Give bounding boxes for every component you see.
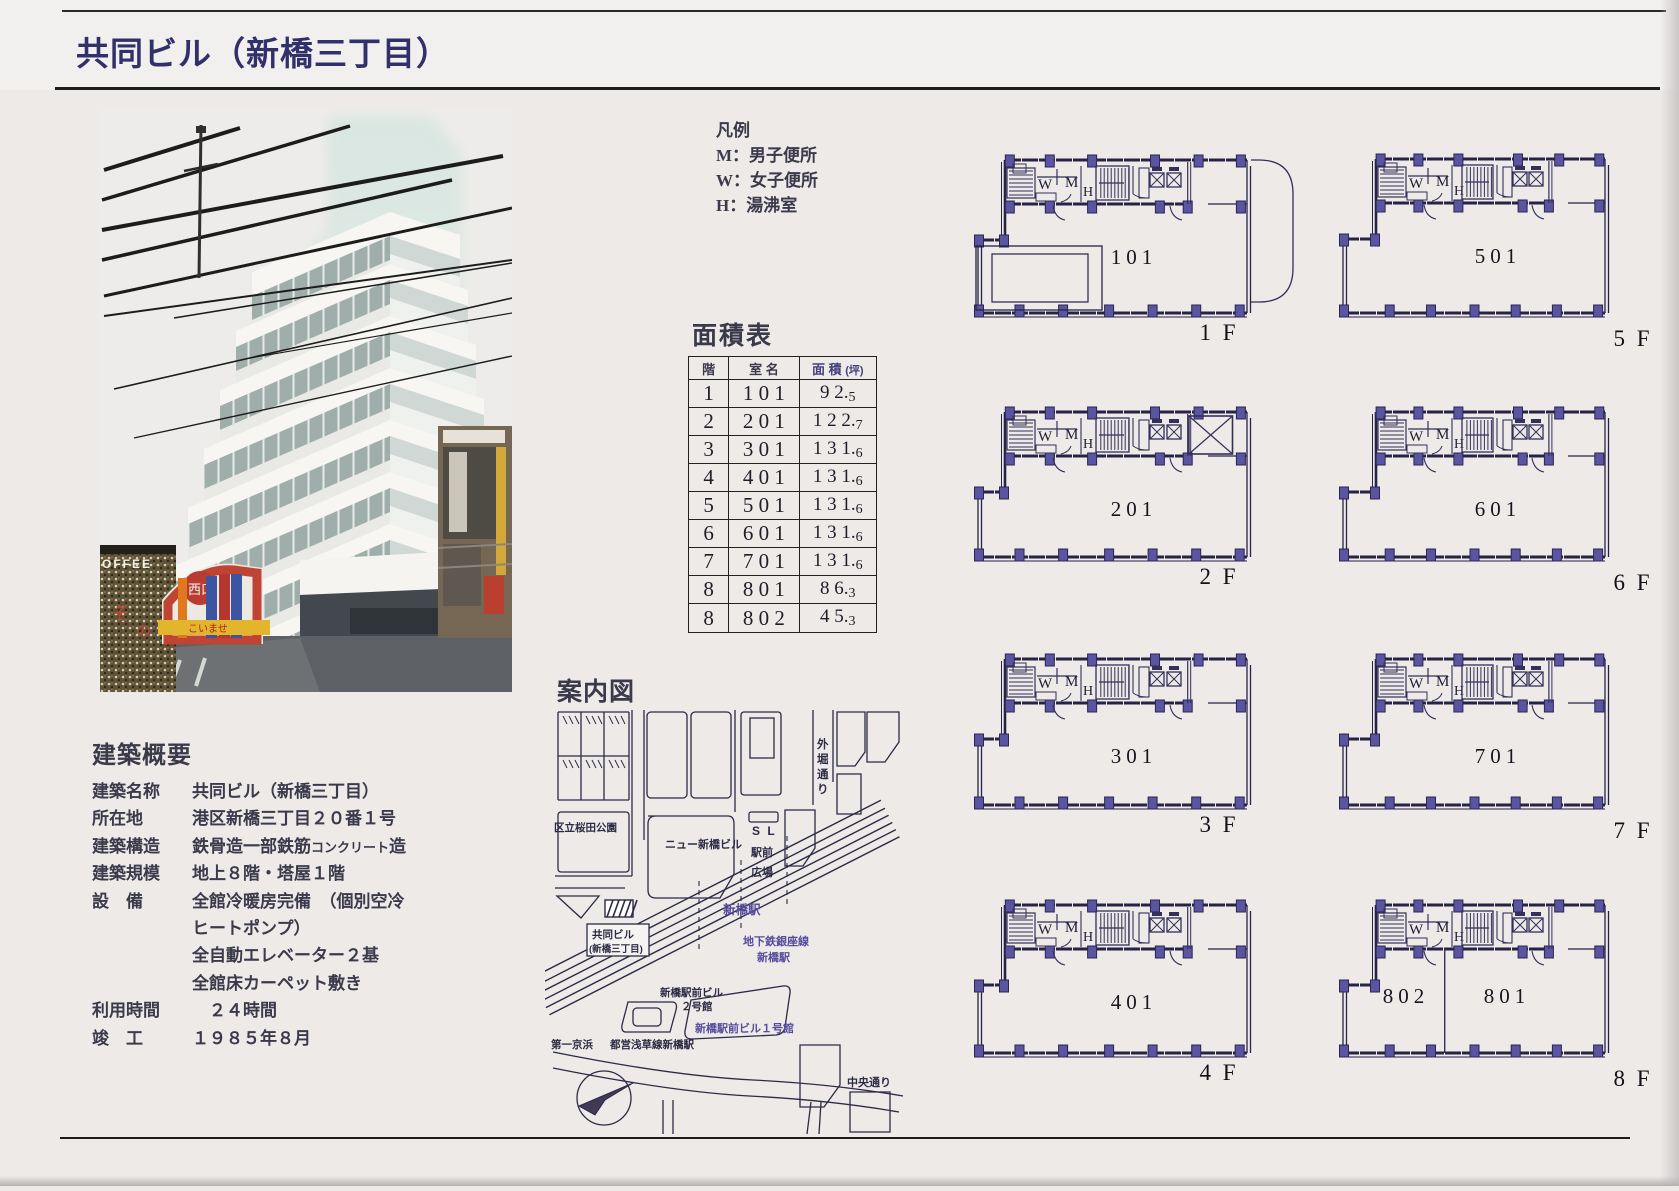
svg-text:W: W xyxy=(1409,429,1424,445)
svg-text:H: H xyxy=(1083,930,1093,945)
svg-text:401: 401 xyxy=(1111,990,1158,1014)
svg-text:3 F: 3 F xyxy=(1199,812,1238,837)
svg-text:101: 101 xyxy=(1111,245,1158,269)
svg-text:5 F: 5 F xyxy=(1613,326,1652,351)
svg-text:802: 802 xyxy=(1383,984,1430,1008)
svg-text:201: 201 xyxy=(1111,497,1158,521)
svg-text:W: W xyxy=(1409,922,1424,938)
svg-text:2 F: 2 F xyxy=(1199,564,1238,589)
svg-text:8 F: 8 F xyxy=(1613,1066,1652,1091)
svg-text:W: W xyxy=(1409,676,1424,692)
svg-text:H: H xyxy=(1083,437,1093,452)
svg-text:H: H xyxy=(1083,684,1093,699)
svg-text:W: W xyxy=(1409,176,1424,192)
svg-text:W: W xyxy=(1038,922,1053,938)
svg-text:701: 701 xyxy=(1475,744,1522,768)
svg-text:501: 501 xyxy=(1475,244,1522,268)
svg-text:301: 301 xyxy=(1111,744,1158,768)
svg-text:1 F: 1 F xyxy=(1199,320,1238,345)
svg-text:4 F: 4 F xyxy=(1199,1060,1238,1085)
svg-text:H: H xyxy=(1083,185,1093,200)
svg-text:W: W xyxy=(1038,676,1053,692)
svg-text:W: W xyxy=(1038,177,1053,193)
svg-text:6 F: 6 F xyxy=(1613,570,1652,595)
svg-text:7 F: 7 F xyxy=(1613,818,1652,843)
svg-text:601: 601 xyxy=(1475,497,1522,521)
svg-text:W: W xyxy=(1038,429,1053,445)
svg-text:801: 801 xyxy=(1484,984,1531,1008)
